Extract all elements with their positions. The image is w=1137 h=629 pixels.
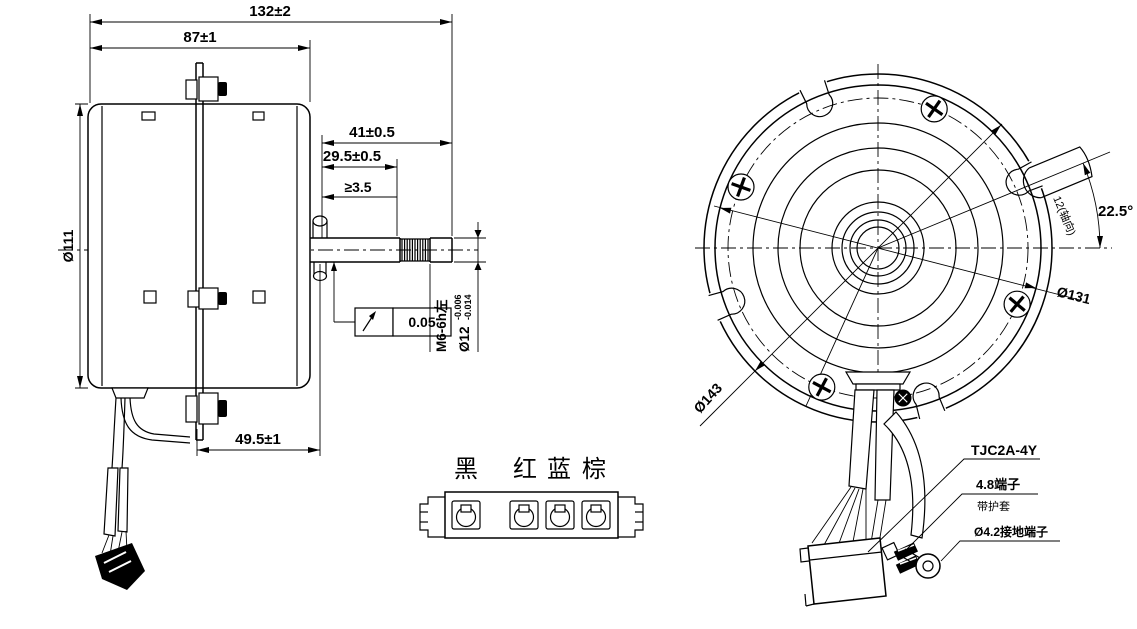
dim-body-diameter: Ø111 [60,229,76,262]
sleeve-note-label: 带护套 [977,499,1010,513]
shaft-tol-upper: -0.006 [453,294,463,320]
motor-body [88,104,310,388]
body-slot [142,112,155,120]
dim-overall-length: 132±2 [249,3,291,20]
dim-body-length: 87±1 [183,29,216,46]
shaft-tol-lower: -0.014 [463,294,473,320]
wire-label-red: 红 [513,456,537,483]
phillips-screw-icon [808,374,835,401]
wire-label-blue: 蓝 [547,456,571,483]
dim-thread-min: ≥3.5 [344,179,371,195]
motor-engineering-drawing: 0.05 132±2 87±1 Ø111 41±0.5 29.5±0.5 ≥3.… [0,0,1137,629]
wire-label-black: 黑 [454,456,478,483]
mount-angle-label: 22.5° [1098,203,1133,220]
lead-wires [95,388,190,590]
terminal-note-label: 4.8端子 [976,477,1020,492]
dim-shaft-extension: 41±0.5 [349,124,395,141]
wire-label-brown: 棕 [582,456,606,483]
phillips-screw-icon [728,174,754,200]
side-view: 0.05 132±2 87±1 Ø111 41±0.5 29.5±0.5 ≥3.… [58,3,486,590]
front-connector-plug [808,538,886,604]
body-dia-label: Ø131 [1055,283,1092,307]
runout-tolerance-frame: 0.05 [331,262,451,336]
flange-dia-label: Ø143 [690,380,725,416]
dim-bracket-offset: 49.5±1 [235,431,281,448]
front-wire-exit [800,372,940,606]
dim-shaft-step: 29.5±0.5 [323,148,381,165]
shaft-diameter: Ø12 [457,326,472,352]
technical-drawing-canvas: 0.05 132±2 87±1 Ø111 41±0.5 29.5±0.5 ≥3.… [0,0,1137,629]
flange-screws [728,95,1031,407]
front-view: 22.5° 12(轴向) Ø131 Ø143 TJC2A-4Y [690,64,1133,606]
connector-terminals [452,501,610,529]
ground-terminal-label: Ø4.2接地端子 [974,524,1048,539]
body-slot [144,291,156,303]
connector-view: 黑 红 蓝 棕 [420,456,643,538]
body-slot [253,112,264,120]
connector-clip-right [618,497,643,537]
ground-ring-terminal [916,554,940,578]
thread-spec: M6-6h左 [433,299,449,352]
thread-hatch [400,239,430,261]
connector-clip-left [420,497,445,537]
front-view-labels: TJC2A-4Y 4.8端子 带护套 Ø4.2接地端子 [868,442,1060,561]
dark-screw-icon [895,390,912,407]
body-slot [253,291,265,303]
connector-model-label: TJC2A-4Y [971,442,1038,458]
runout-value: 0.05 [408,314,435,330]
boss-note-label: 12(轴向) [1050,194,1079,238]
